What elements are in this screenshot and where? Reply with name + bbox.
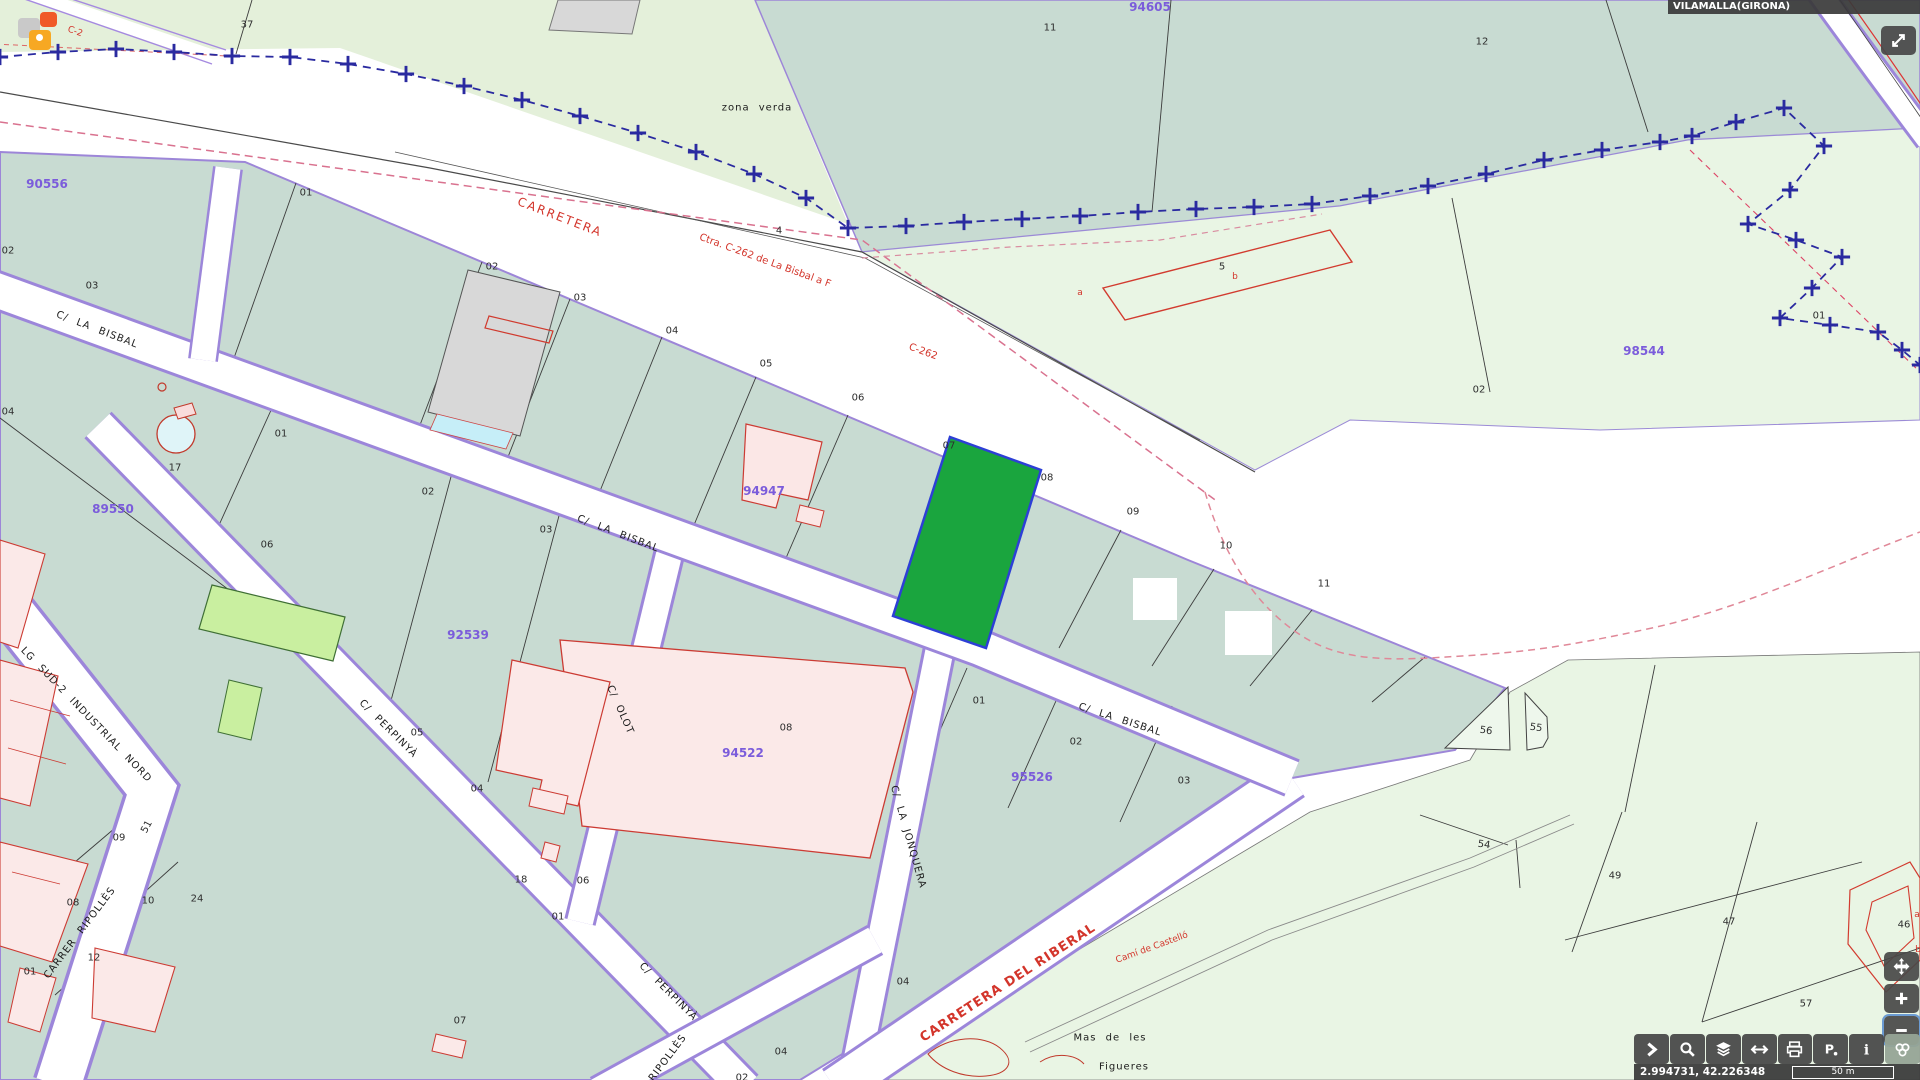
map-toolbar: Pi <box>1634 1034 1920 1064</box>
scale-bar: 50 m <box>1792 1066 1894 1079</box>
toolbar-layers-button[interactable] <box>1706 1034 1741 1064</box>
toolbar-info-button[interactable]: i <box>1849 1034 1884 1064</box>
svg-text:i: i <box>1864 1042 1869 1058</box>
map-canvas[interactable] <box>0 0 1920 1080</box>
status-bar: 2.994731, 42.226348 50 m <box>1634 1064 1920 1080</box>
municipality-label: VILAMALLA(GIRONA) <box>1668 0 1920 14</box>
loading-marker-dot <box>36 34 43 41</box>
coordinates-readout: 2.994731, 42.226348 <box>1634 1066 1792 1078</box>
svg-text:P: P <box>1825 1041 1834 1056</box>
loading-marker-red <box>40 12 57 27</box>
toolbar-print-button[interactable] <box>1778 1034 1813 1064</box>
toolbar-street-view-button[interactable]: P <box>1813 1034 1848 1064</box>
toolbar-measure-button[interactable] <box>1742 1034 1777 1064</box>
toolbar-expand-panel-button[interactable] <box>1634 1034 1669 1064</box>
pan-button[interactable] <box>1884 952 1919 981</box>
fullscreen-button[interactable] <box>1881 26 1916 55</box>
map-viewer: 9055689550925399452294947955269460598544… <box>0 0 1920 1080</box>
toolbar-base-maps-button[interactable] <box>1885 1034 1920 1064</box>
zoom-in-button[interactable] <box>1884 984 1919 1013</box>
toolbar-search-button[interactable] <box>1670 1034 1705 1064</box>
